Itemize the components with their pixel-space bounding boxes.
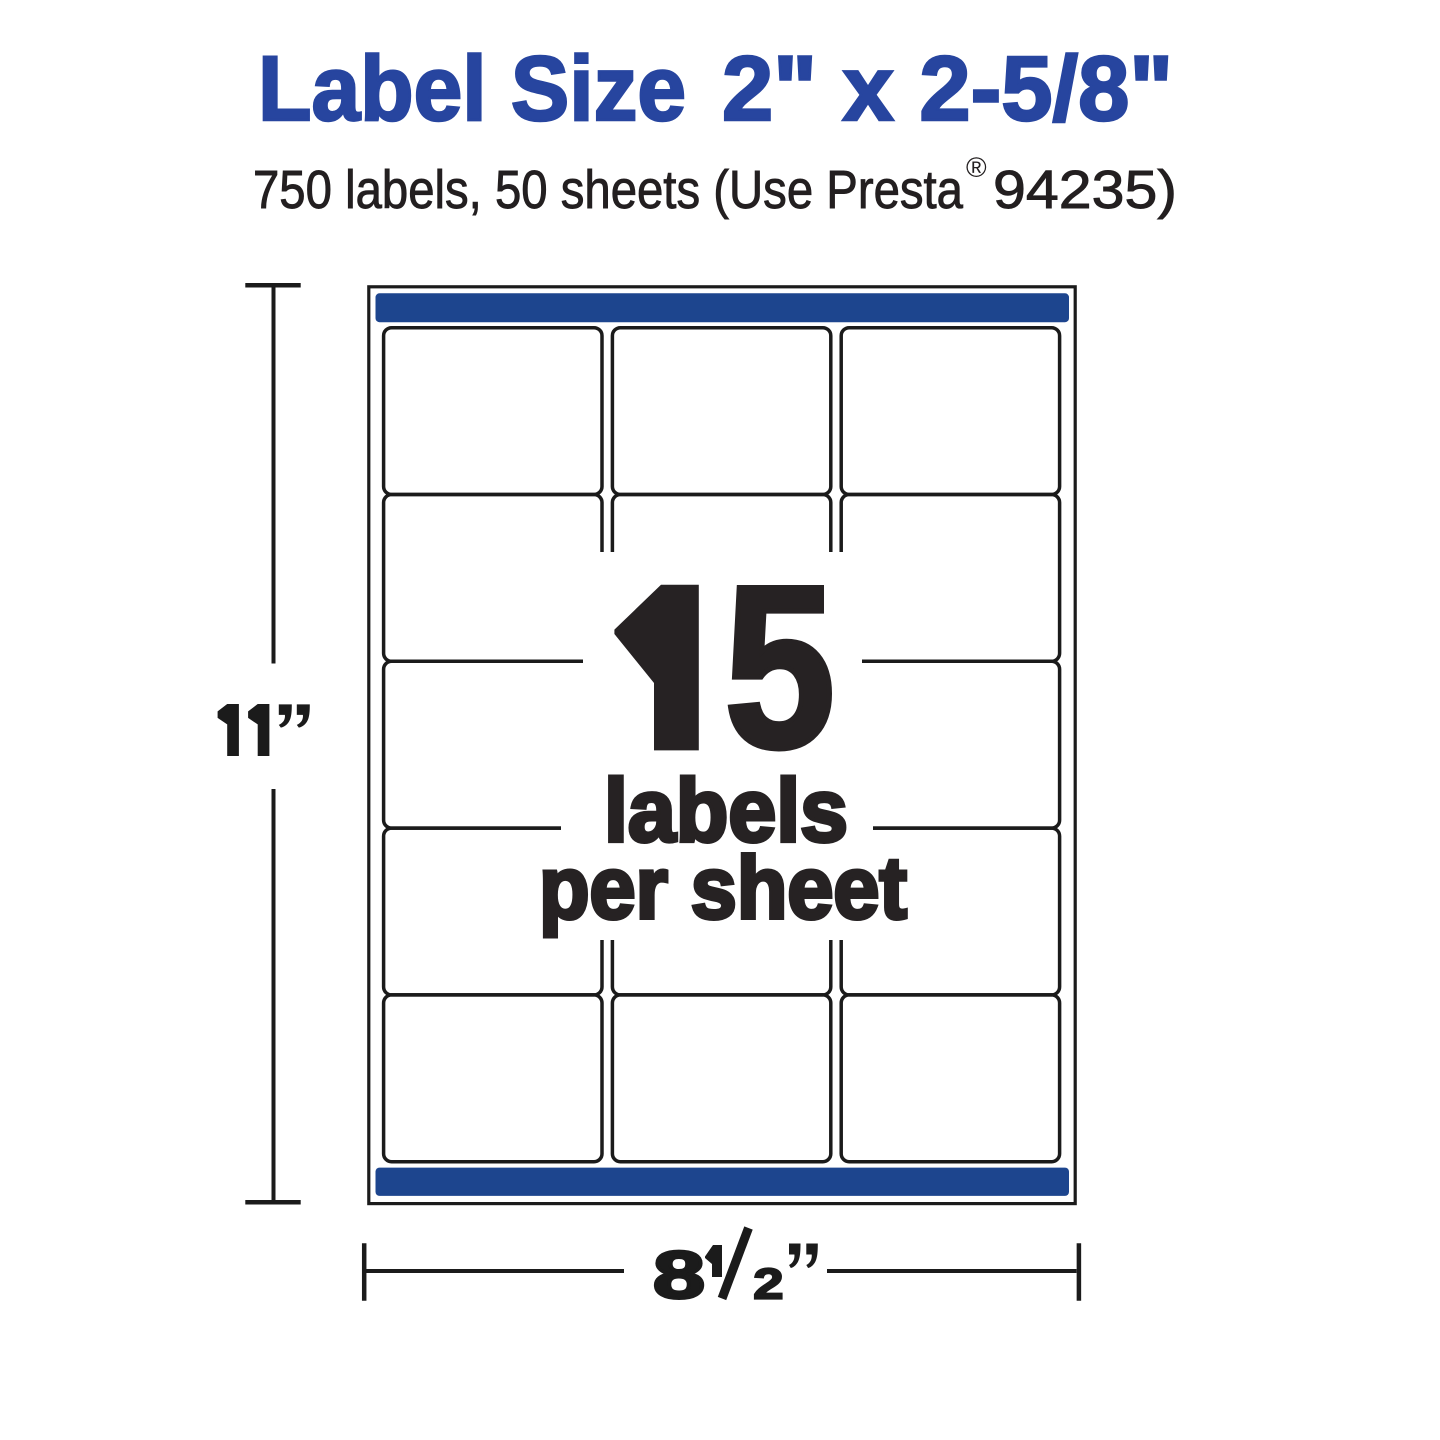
svg-text:94235): 94235) xyxy=(993,160,1177,220)
svg-text:Label Size: Label Size xyxy=(258,38,686,140)
svg-text:®: ® xyxy=(966,152,987,183)
svg-text:2" x 2-5/8": 2" x 2-5/8" xyxy=(722,38,1173,140)
svg-text:8: 8 xyxy=(653,1238,705,1313)
svg-text:per sheet: per sheet xyxy=(539,838,907,937)
svg-text:750 labels, 50 sheets (Use Pre: 750 labels, 50 sheets (Use Presta xyxy=(253,160,964,220)
